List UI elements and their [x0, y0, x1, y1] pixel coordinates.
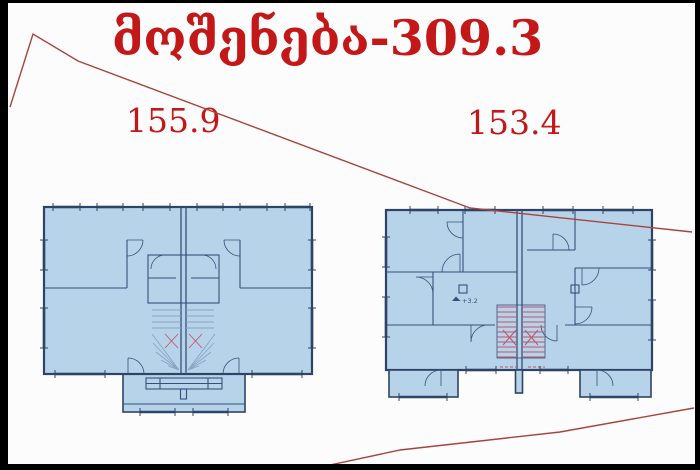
left-plan-outline	[44, 207, 312, 374]
right-plan-outline	[386, 210, 652, 370]
left-floor-plan	[40, 203, 316, 416]
frame-border-left	[0, 0, 8, 470]
level-marker-label: +3.2	[462, 297, 478, 305]
frame-border-right	[695, 0, 700, 470]
plan-sheet: მოშენება-309.3 155.9 153.4	[0, 0, 700, 470]
right-plan-stub	[516, 370, 523, 393]
left-plan-porch	[123, 373, 245, 412]
right-floor-plan: +3.2	[382, 206, 656, 401]
annotation-line-top	[10, 34, 692, 232]
right-plan-balcony-left	[389, 370, 458, 397]
frame-border-top	[0, 0, 700, 3]
right-plan-balcony-right	[580, 370, 651, 397]
floor-plans-canvas: +3.2	[0, 0, 700, 470]
annotation-line-bottom	[316, 408, 694, 468]
frame-border-bottom	[0, 464, 700, 470]
